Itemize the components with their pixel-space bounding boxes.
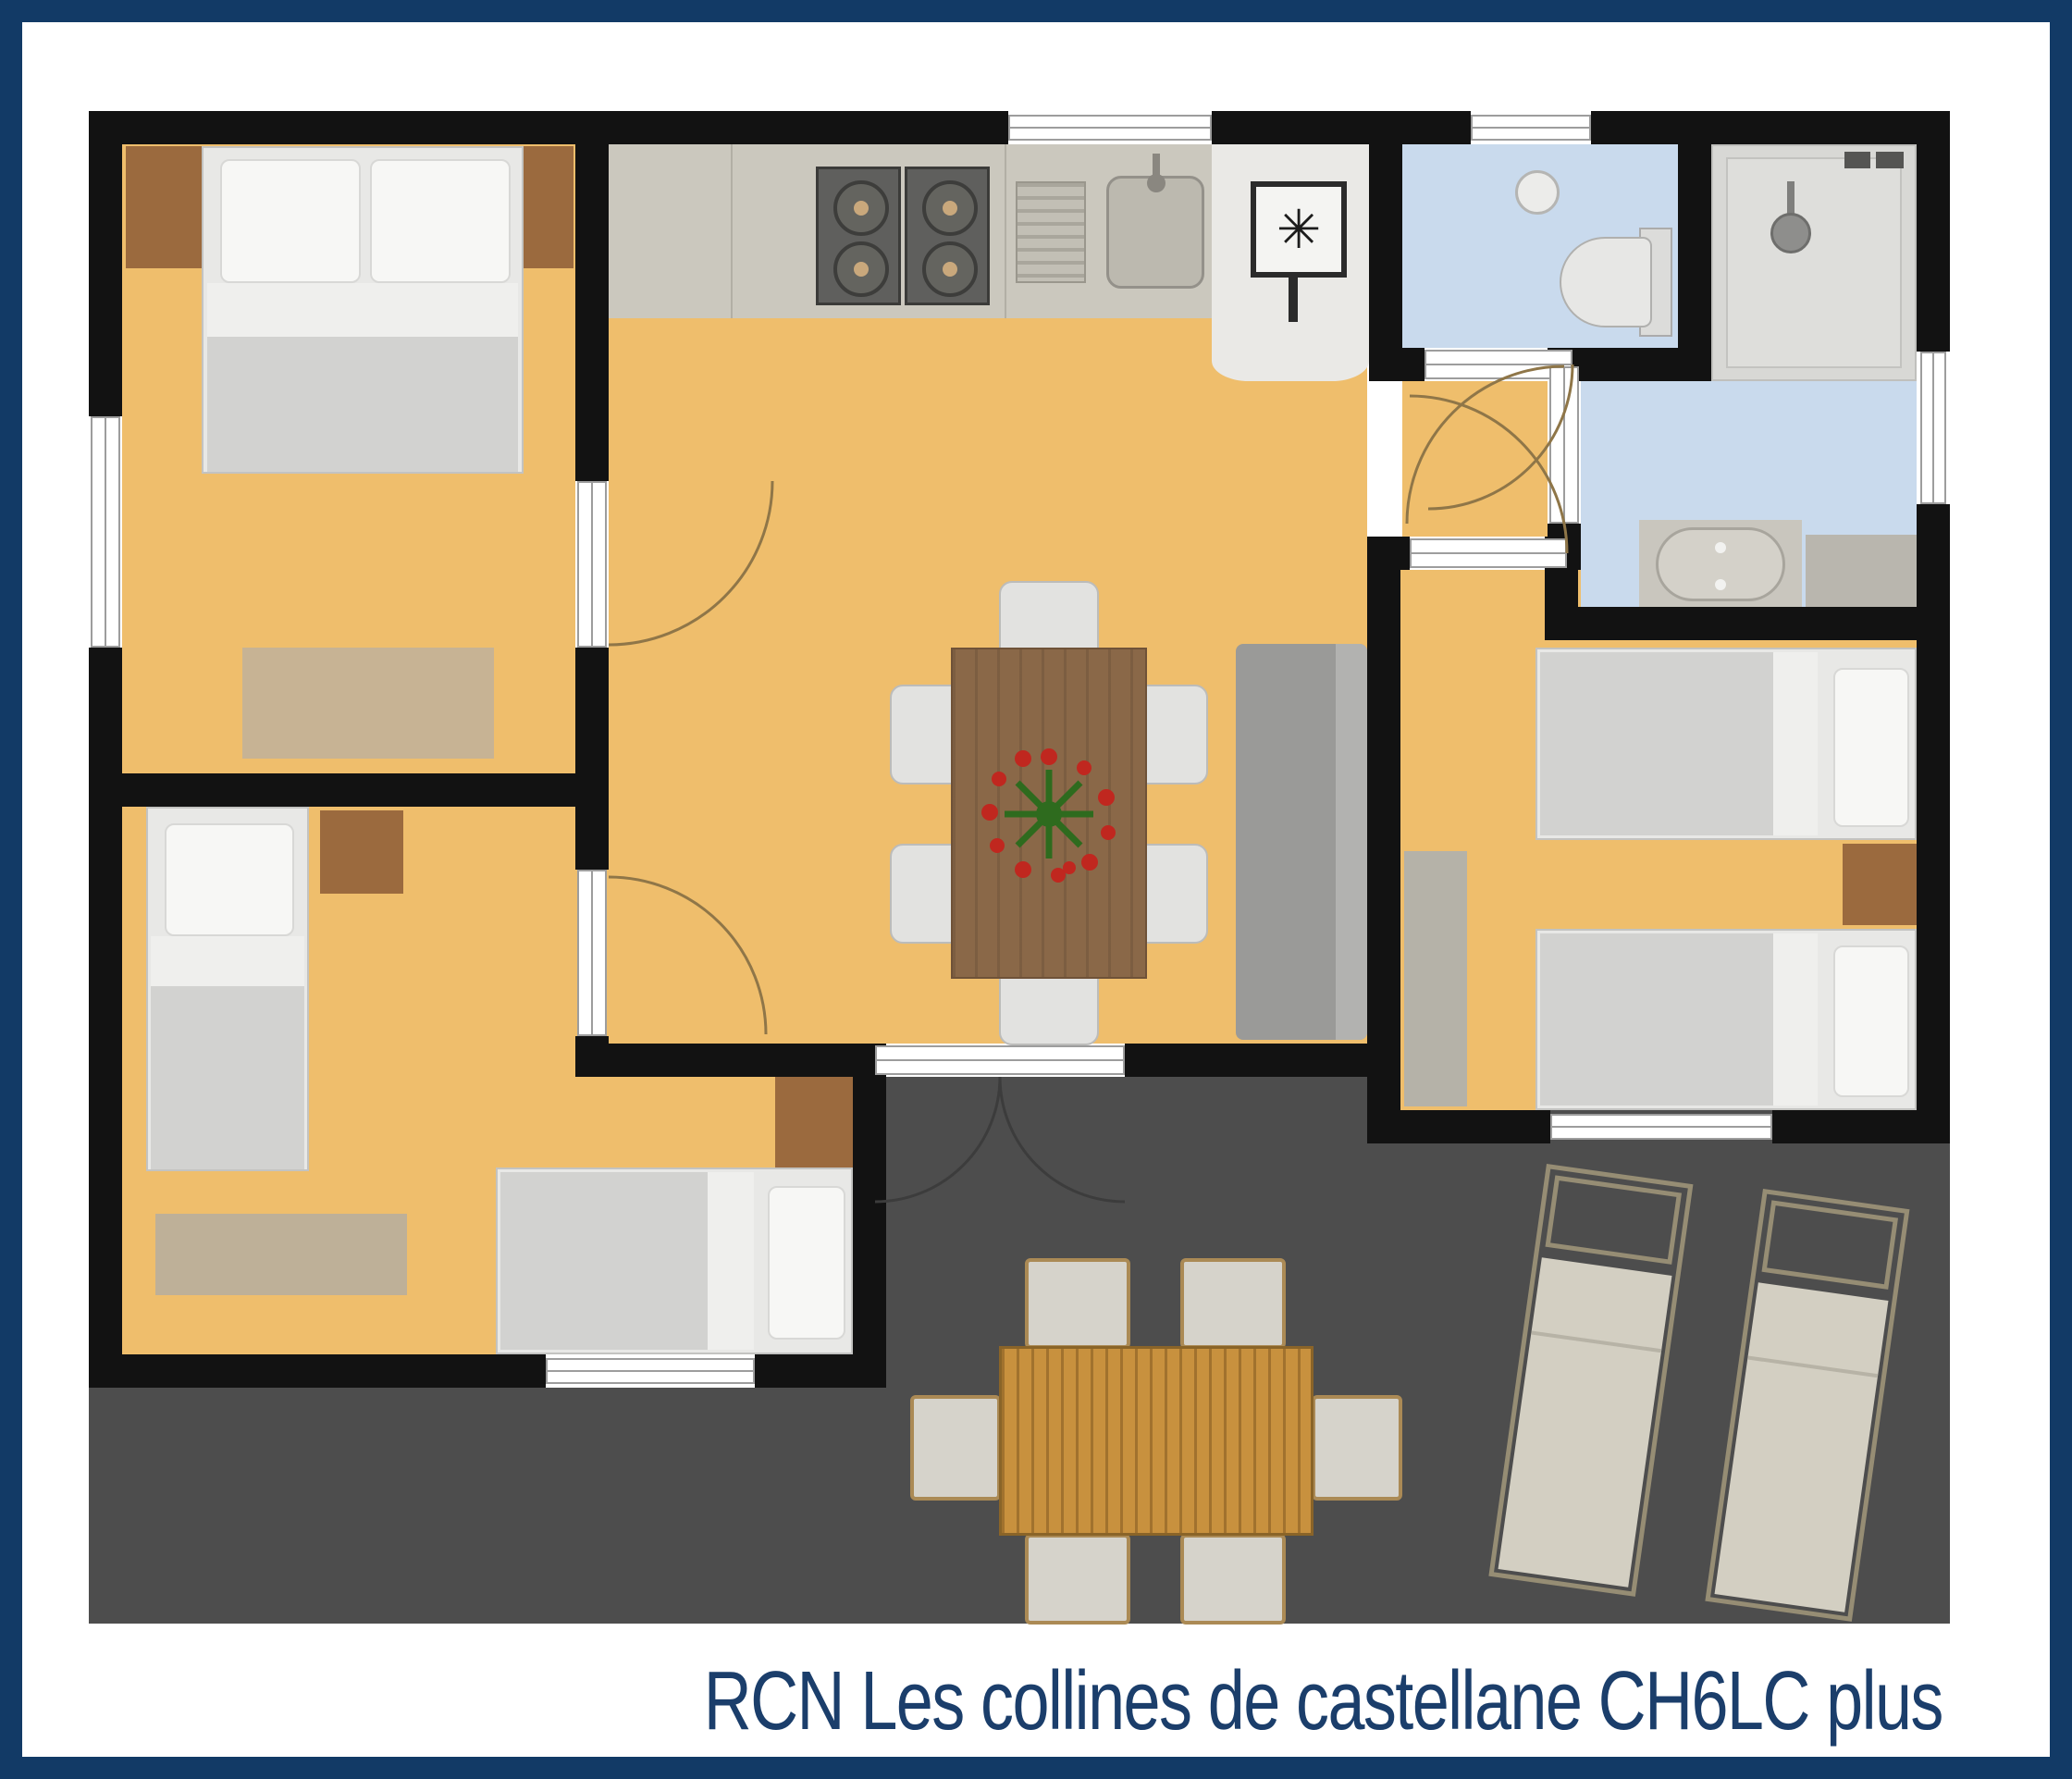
bed-sheet-fold [1773,652,1818,835]
bed-sheet-fold [207,283,518,337]
nightstand [320,810,403,894]
vanity-counter [1806,535,1917,607]
wall [1369,111,1402,381]
pillow [1833,945,1909,1097]
cooktop-burner-icon [922,241,978,297]
single-bed [1535,648,1917,840]
wall [1591,111,1950,144]
wall [575,1036,609,1077]
wall [609,1044,875,1077]
washbasin-drain-icon [1715,579,1726,590]
pillow [165,823,294,936]
window [1920,352,1946,504]
door [875,1045,1125,1075]
wall [1772,1110,1950,1143]
door [1410,538,1567,568]
door [577,870,607,1036]
sofa [1236,644,1367,1040]
shower-tray-inner [1726,157,1902,368]
cooktop-right-panel [905,167,990,305]
window [91,416,120,648]
terrace-floor-lower [89,1388,886,1624]
sink-tap-icon [1147,174,1165,192]
duvet [151,986,304,1169]
wall [575,144,609,481]
outdoor-table [999,1346,1313,1536]
wall [1678,111,1711,381]
wall [1402,348,1424,381]
door [1549,366,1579,524]
single-bed [146,807,309,1171]
window [1008,115,1212,141]
wall [1917,504,1950,1143]
counter-seam [1005,144,1006,318]
shower-head-icon [1770,213,1811,253]
wall [89,648,122,1388]
wall [1212,111,1471,144]
nightstand [1843,844,1917,925]
wall [575,648,609,870]
wall [1125,1044,1400,1077]
shower-controls [1844,152,1870,168]
wardrobe [775,1077,853,1167]
pillow [1833,668,1909,827]
bed-sheet-fold [151,936,304,986]
rug [155,1214,407,1295]
wall [1917,111,1950,352]
bed-sheet-fold [1773,933,1818,1106]
pillow [220,159,361,283]
lounger-headrest [1546,1175,1683,1264]
plan-title: RCN Les collines de castellane CH6LC plu… [704,1654,1942,1749]
wall [1572,348,1678,381]
wall [89,1354,546,1388]
rug [242,648,494,759]
floorplan-page: ✳ [0,0,2072,1779]
lounger-headrest [1762,1200,1899,1289]
wall [1545,607,1950,640]
wall [853,1044,886,1388]
kitchen-sink [1106,176,1204,289]
toilet-bowl [1560,237,1652,327]
double-bed [202,146,524,474]
nightstand [126,146,209,268]
single-bed [1535,929,1917,1110]
small-washbasin [1515,170,1560,215]
duvet [1540,652,1773,835]
outdoor-chair [1312,1395,1402,1501]
cooktop-burner-icon [833,180,889,236]
washbasin [1656,527,1785,601]
outdoor-chair [1180,1258,1286,1349]
single-bed [496,1167,853,1354]
shower-controls [1876,152,1904,168]
wall [1367,537,1400,1143]
nightstand [516,146,573,268]
washbasin-tap-icon [1715,542,1726,553]
outdoor-chair [1180,1534,1286,1625]
dining-table [951,648,1147,979]
duvet [1540,933,1773,1106]
sofa-backrest [1336,644,1367,1040]
pillow [370,159,511,283]
window [546,1358,755,1384]
shower-head-icon [1787,181,1794,215]
outdoor-chair [1025,1258,1130,1349]
outdoor-chair [1025,1534,1130,1625]
window [1471,115,1591,141]
duvet [500,1172,708,1350]
wall [89,111,1008,144]
hall-floor [1402,381,1548,537]
bed-sheet-fold [708,1172,754,1350]
counter-seam [731,144,733,318]
pillow [768,1186,845,1340]
freezer-symbol-icon: ✳ [1251,181,1347,278]
cooktop-burner-icon [922,180,978,236]
wall [755,1354,886,1388]
rug [1404,851,1467,1106]
wall [89,773,609,807]
wall [1400,537,1410,570]
cooktop-left-panel [816,167,901,305]
wall [1367,1110,1550,1143]
outdoor-chair [910,1395,1001,1501]
window [1550,1114,1772,1140]
duvet [207,337,518,472]
freezer-symbol-stem [1289,272,1298,322]
wall [89,111,122,416]
draining-board [1016,181,1086,283]
cooktop-burner-icon [833,241,889,297]
door [577,481,607,648]
